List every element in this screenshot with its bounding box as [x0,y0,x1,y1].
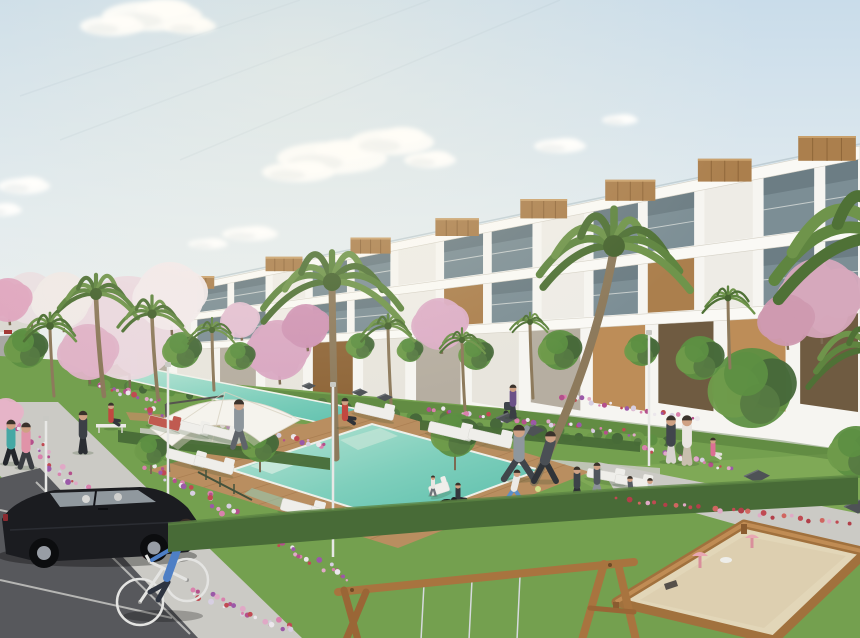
architectural-render [0,0,860,638]
scene-canvas [0,0,860,638]
light-haze [0,0,860,638]
